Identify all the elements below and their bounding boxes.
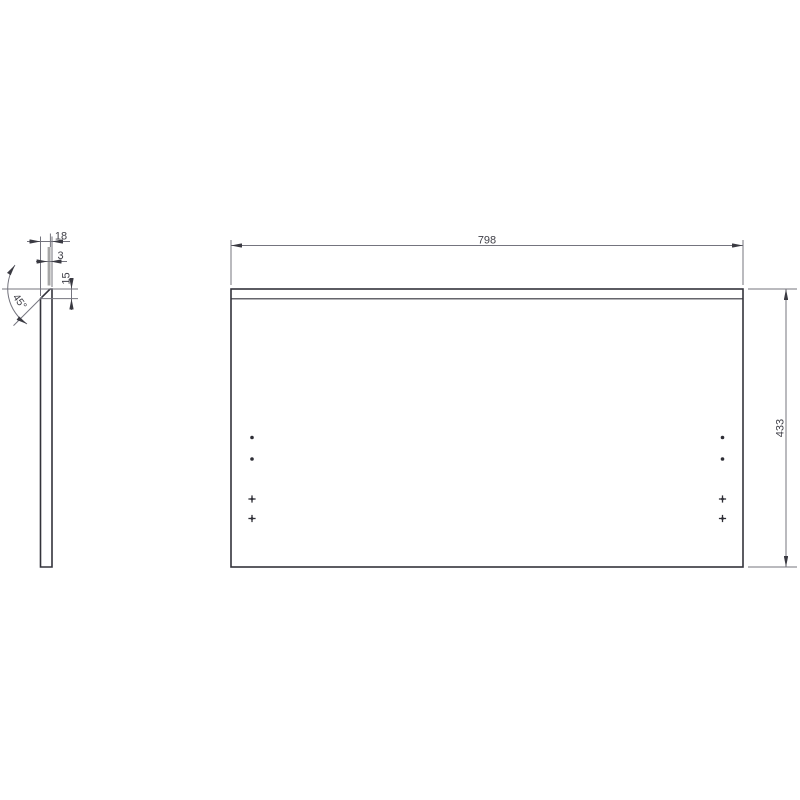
drill-dot (250, 457, 254, 461)
dim-text-thickness: 18 (55, 231, 67, 243)
dimension-width: 798 (231, 235, 743, 286)
side-panel-profile (41, 289, 53, 567)
front-panel-outline (231, 289, 743, 567)
technical-drawing: 18 3 15 45° (0, 0, 800, 800)
dimension-chamfer-depth: 15 (61, 272, 73, 310)
side-view: 18 3 15 45° (2, 231, 78, 568)
dimension-thickness: 18 (27, 231, 70, 243)
drill-dot (721, 436, 725, 440)
drill-dot (721, 457, 725, 461)
dimension-chamfer-angle: 45° (8, 265, 42, 326)
drill-dot (250, 436, 254, 440)
side-extension-lines (2, 234, 78, 299)
dim-text-width: 798 (478, 235, 496, 247)
drawing-canvas: 18 3 15 45° (0, 0, 800, 800)
dim-text-height: 433 (775, 419, 787, 437)
dim-text-chamfer-depth: 15 (61, 272, 73, 284)
dim-text-top-face: 3 (57, 250, 63, 262)
edge-strip (48, 247, 51, 286)
front-view: 798 433 (231, 235, 797, 568)
dimension-height: 433 (748, 289, 797, 567)
